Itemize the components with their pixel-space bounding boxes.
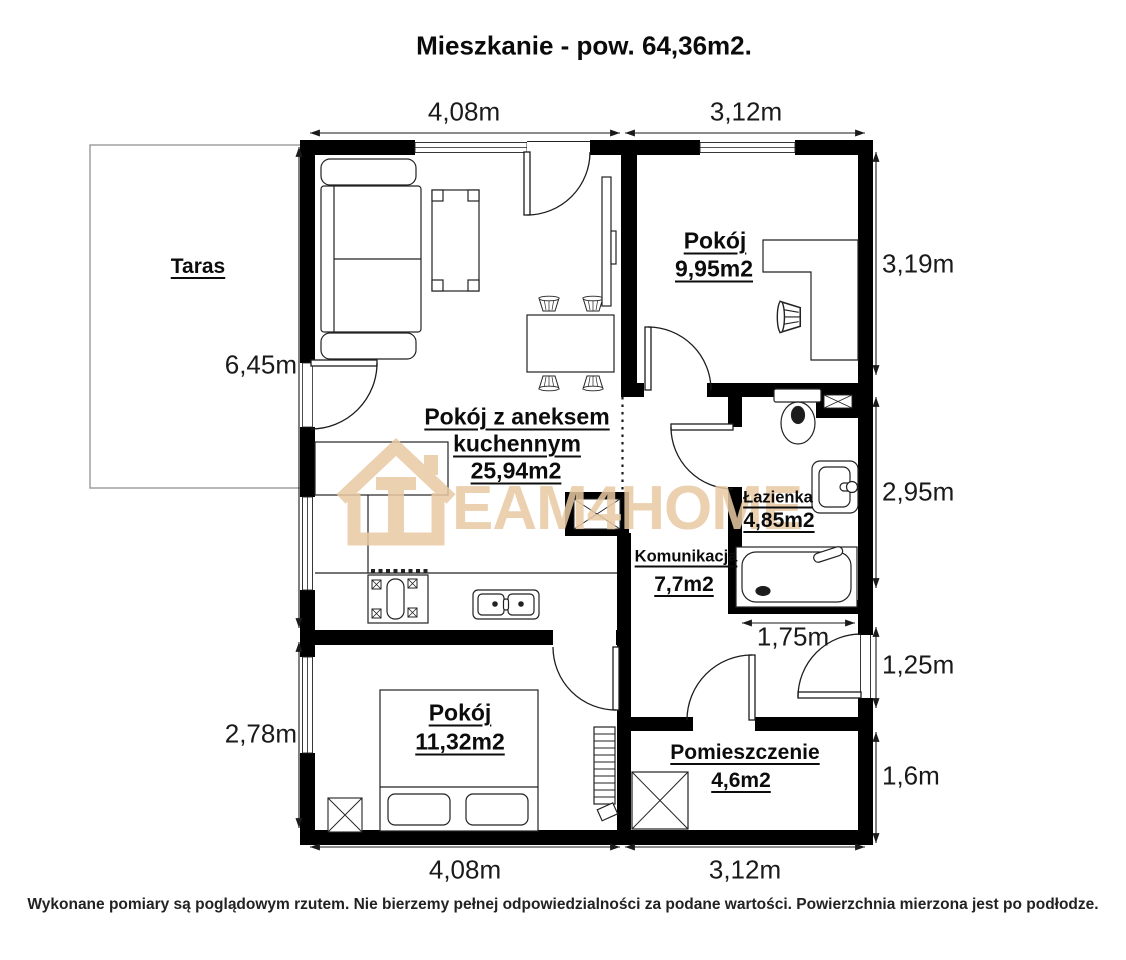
desk: [763, 240, 858, 360]
dim-label-right-2: 2,95m: [882, 477, 954, 508]
terrace-outline: [90, 145, 305, 488]
room-label-lazienka: Łazienka: [743, 489, 813, 508]
bathroom-sink: [812, 461, 858, 513]
dim-label-bottom-right: 3,12m: [709, 855, 781, 886]
room-area-salon: 25,94m2: [471, 458, 562, 485]
kitchen-sink: [473, 590, 539, 619]
coffee-table: [432, 190, 479, 291]
page-title: Mieszkanie - pow. 64,36m2.: [416, 31, 752, 62]
dim-label-left-lower: 2,78m: [225, 719, 297, 750]
vent-bathroom: [824, 395, 852, 408]
room-label-sypialnia: Pokój: [429, 700, 492, 727]
room-label-salon-line2: kuchennym: [453, 431, 581, 458]
office-chair: [777, 301, 800, 332]
dim-label-hall-width: 1,75m: [757, 622, 829, 653]
room-area-sypialnia: 11,32m2: [415, 729, 505, 756]
storage-door: [687, 655, 755, 720]
dim-label-top-right: 3,12m: [710, 97, 782, 128]
room-label-pomieszczenie: Pomieszczenie: [670, 741, 819, 765]
terrace-door: [311, 360, 377, 429]
tv-unit: [602, 177, 616, 306]
dining-table: [527, 296, 614, 391]
balcony-door: [524, 152, 590, 215]
floor-plan-drawing: EAM4HOME: [0, 0, 1126, 960]
dim-label-right-3: 1,25m: [882, 650, 954, 681]
furniture-room-top: [763, 240, 858, 360]
bathtub: [736, 546, 857, 607]
dim-label-right-1: 3,19m: [882, 249, 954, 280]
room-area-lazienka: 4,85m2: [743, 509, 814, 533]
shaft-storage: [632, 772, 688, 829]
room-label-salon-line1: Pokój z aneksem: [424, 404, 609, 431]
dim-label-bottom-left: 4,08m: [429, 855, 501, 886]
room-top-door: [645, 327, 711, 390]
stove: [368, 575, 428, 623]
sofa: [321, 159, 421, 359]
balcony-door-gap: [527, 140, 590, 155]
dim-label-right-4: 1,6m: [882, 761, 940, 792]
toilet: [774, 389, 821, 444]
radiator: [594, 727, 618, 821]
floor-plan-page: EAM4HOME Mieszkanie - pow. 64,36m2. Tara…: [0, 0, 1126, 960]
room-area-pomieszczenie: 4,6m2: [711, 769, 771, 793]
room-label-komunikacja: Komunikacja: [635, 548, 738, 567]
furniture-bedroom: [380, 690, 618, 831]
room-label-pokoj-gorny: Pokój: [684, 228, 747, 255]
bedroom-door: [553, 647, 619, 710]
dim-label-top-left: 4,08m: [428, 97, 500, 128]
dim-label-left-upper: 6,45m: [225, 350, 297, 381]
furniture-living: [315, 159, 617, 623]
kitchen-counter: [315, 571, 617, 623]
room-label-taras: Taras: [171, 255, 225, 279]
shaft-bedroom: [328, 798, 362, 832]
room-area-komunikacja: 7,7m2: [654, 573, 714, 597]
footer-disclaimer: Wykonane pomiary są poglądowym rzutem. N…: [27, 896, 1098, 914]
room-area-pokoj-gorny: 9,95m2: [675, 256, 753, 283]
